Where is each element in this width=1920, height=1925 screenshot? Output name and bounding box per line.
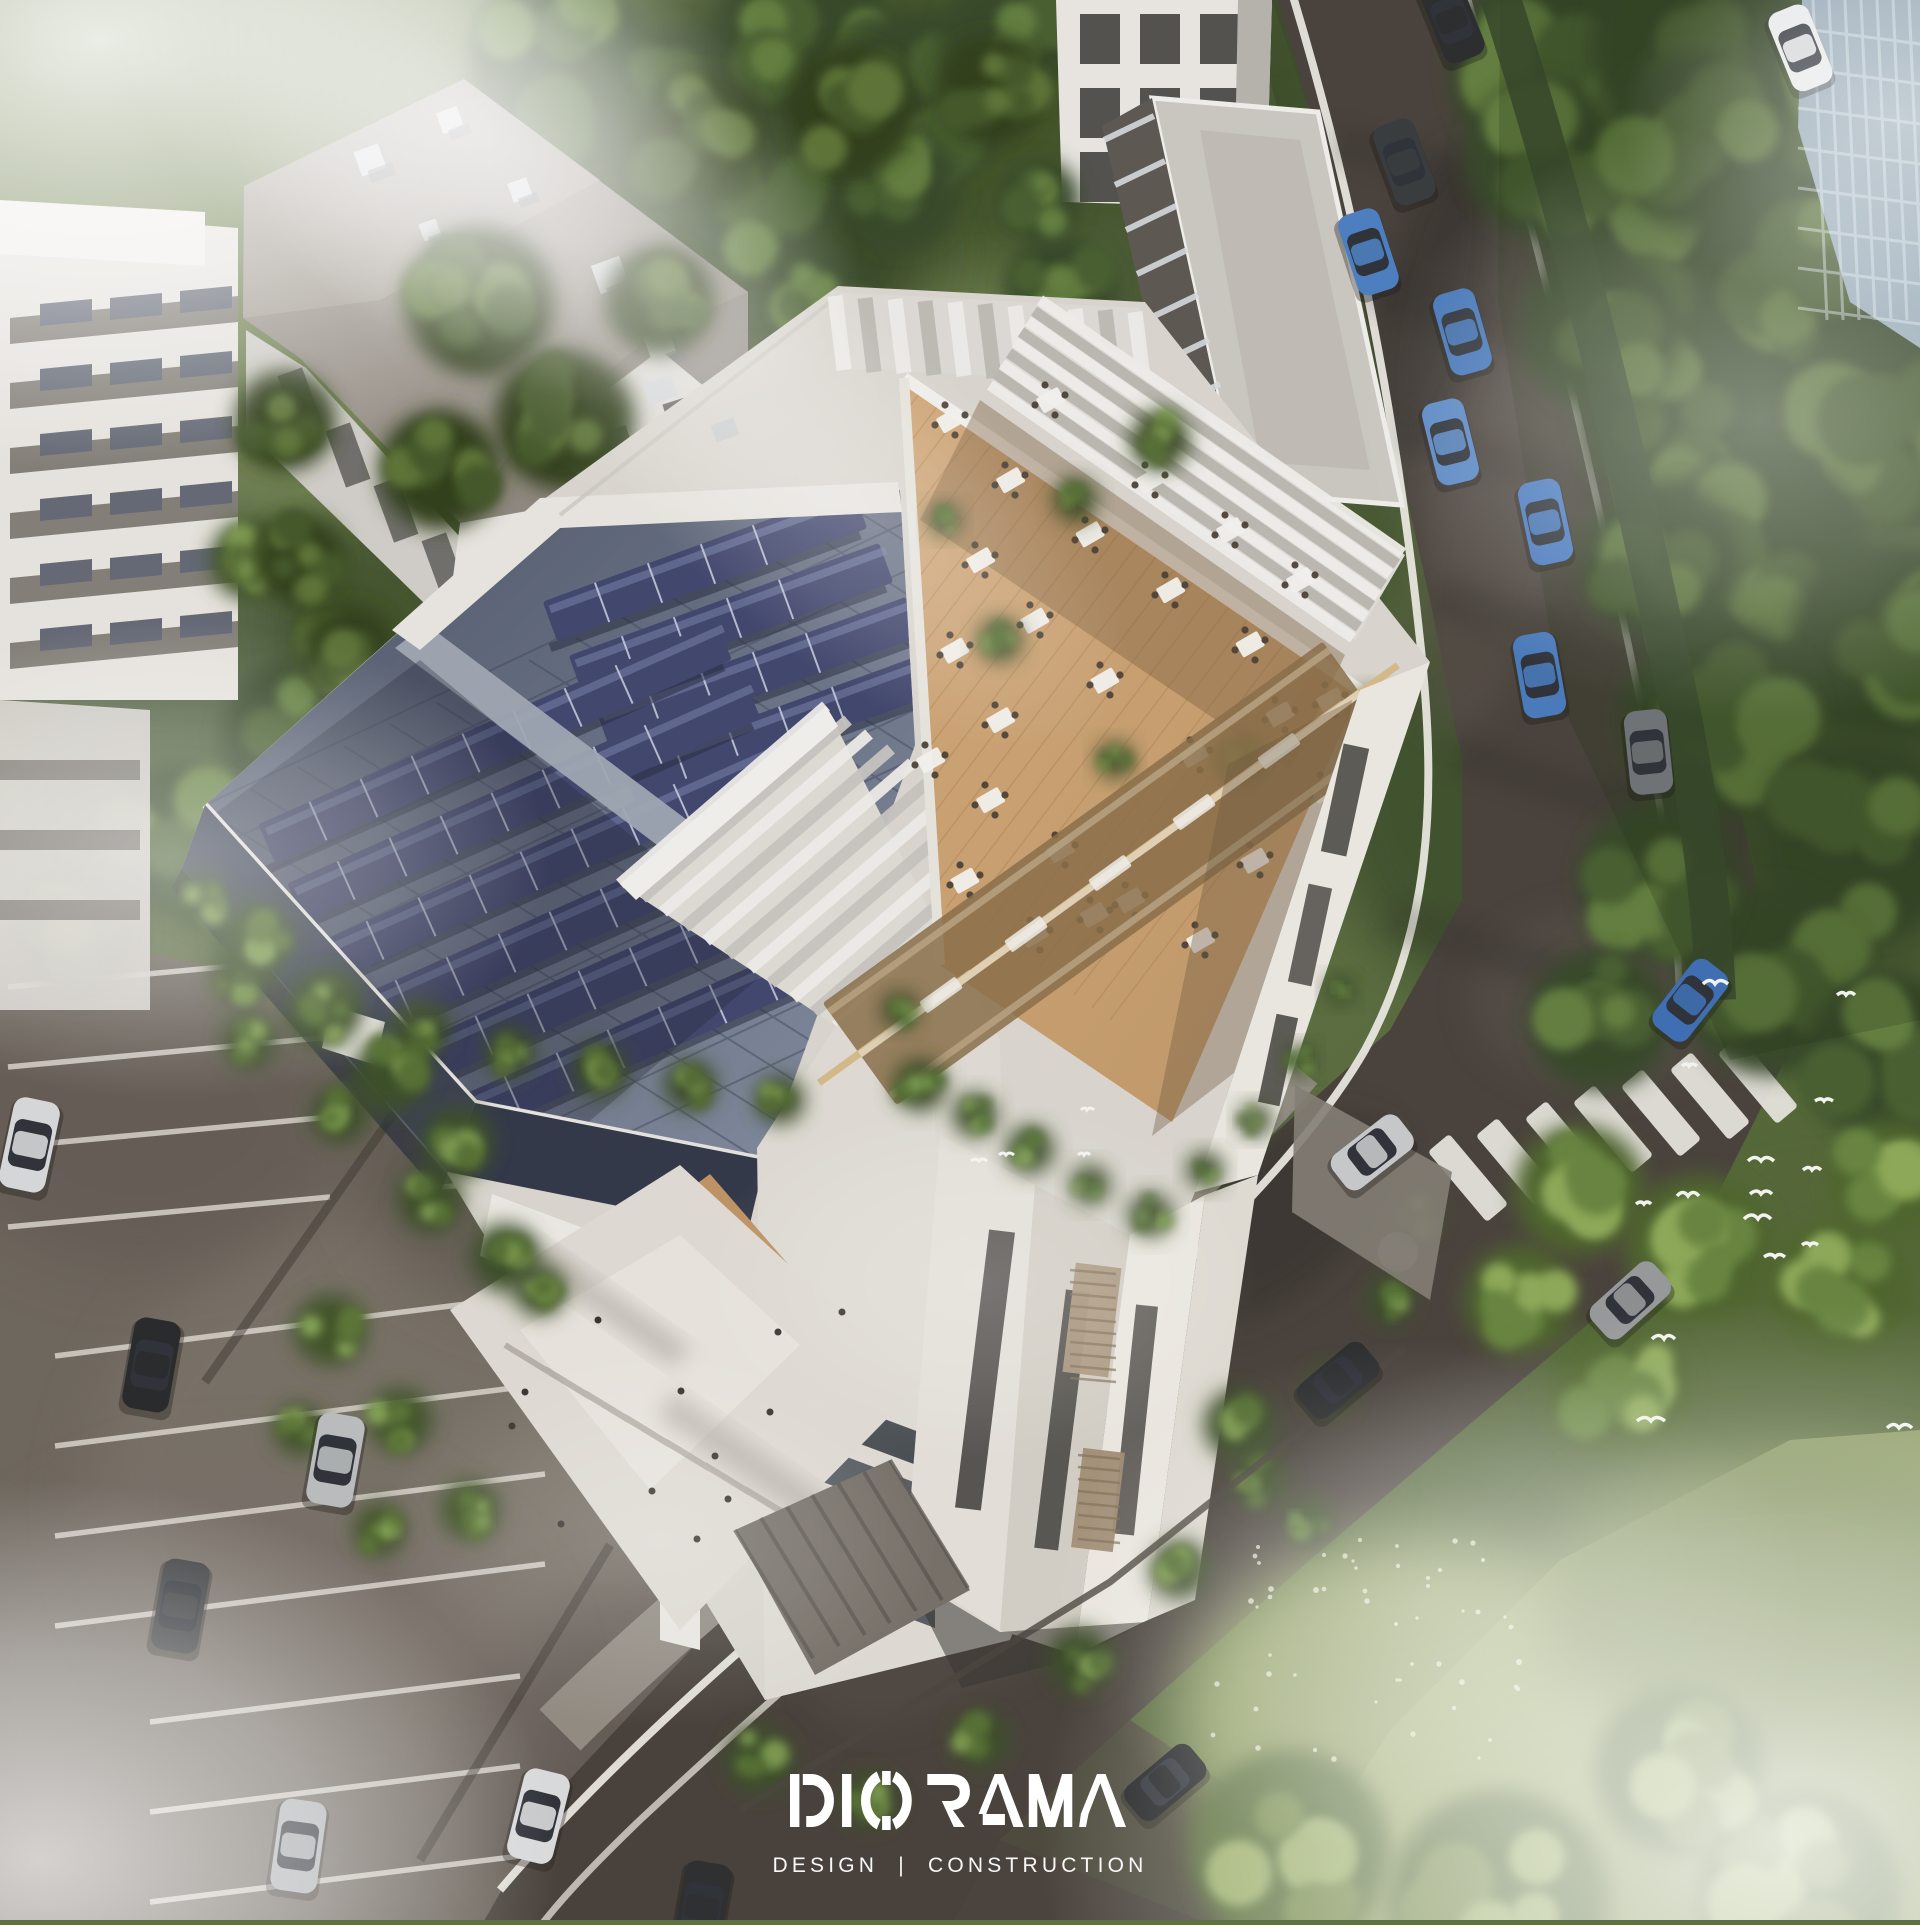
svg-text:DESIGN | CONSTRUCTION: DESIGN | CONSTRUCTION	[772, 1854, 1147, 1877]
